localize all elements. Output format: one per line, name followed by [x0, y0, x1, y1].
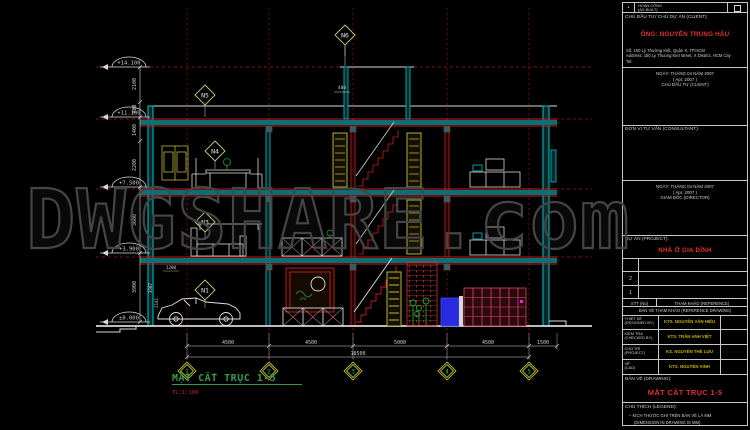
elev-0000: ±0.000	[119, 316, 139, 322]
drawing-title-block: MẶT CẮT TRỤC 1-5 TL:1:100	[172, 371, 302, 396]
project-name: NHÀ Ở GIA ĐÌNH	[623, 247, 747, 254]
client-address: Số: 150 Lý Thường Kiệt, Quận X, TP.HCM A…	[626, 48, 746, 64]
room-tags: N6 N5 N4 N3 N1	[195, 25, 355, 308]
consultant-header: ĐƠN VỊ TƯ VẤN (CONSULTANT):	[623, 127, 699, 132]
bdim-4: 4500	[482, 340, 494, 346]
staff-row: KIỂM TRA(CHECKED BY) KTS. TRẦN ANH VIỆT	[623, 330, 747, 345]
drawing-title: MẶT CẮT TRỤC 1-5	[172, 371, 276, 384]
legend-line2: (DIMENSION IN DRAWING IS MM)	[634, 420, 746, 425]
elev-7500: +7.500	[119, 181, 139, 187]
mdim-1200: 1200	[166, 265, 177, 270]
drawing-scale: TL:1:100	[172, 390, 199, 396]
ldim-2200: 2200	[132, 159, 138, 171]
bdim-5: 1500	[537, 340, 549, 346]
ldim-1400: 1400	[132, 124, 138, 136]
project-label: DỰ ÁN (PROJECT):	[623, 237, 669, 242]
asbuilt-checkbox	[734, 5, 741, 12]
elev-3900: +3.900	[119, 247, 139, 253]
ref-header-row: STT (No) THAM KHẢO (REFERENCE)	[623, 299, 747, 307]
ref-row: 2	[623, 272, 747, 286]
room-tag-n5: N5	[201, 92, 209, 100]
room-tag-n6: N6	[341, 32, 349, 40]
room-tag-n3: N3	[201, 219, 209, 227]
ldim-900: 900	[132, 104, 138, 113]
bdim-3: 5000	[394, 340, 406, 346]
elev-14100: +14.100	[117, 61, 140, 67]
director-sign-block: NGÀY: THÁNG 04 NĂM 2007 ( Apr, 2007 ) GI…	[623, 184, 747, 201]
staff-row: VẼ(CAD) KTS. NGUYỄN VINH	[623, 360, 747, 375]
ldim-3900: 3900	[132, 281, 138, 293]
staff-name: KTS. NGUYỄN VINH	[659, 360, 721, 374]
grid-bubble-3: 3	[351, 369, 355, 376]
staff-row: THIẾT KẾ(DESIGNED BY) KTS. NGUYỄN VĂN HI…	[623, 315, 747, 330]
asbuilt-row: • HOÀN CÔNG (AS BUILT)	[623, 3, 747, 13]
mdim-3507: 3507	[148, 282, 153, 293]
asbuilt-label-en: (AS BUILT)	[638, 7, 658, 12]
legend-line1: – KÍCH THƯỚC GHI TRÊN BẢN VẼ LÀ MM	[629, 413, 746, 418]
legend-label: CHÚ THÍCH (LEGEND):	[623, 405, 677, 410]
client-name: ÔNG: NGUYỄN TRUNG HẬU	[623, 31, 747, 38]
bdim-1: 4500	[222, 340, 234, 346]
titleblock-drawing-name: MẶT CẮT TRỤC 1-5	[623, 388, 747, 397]
client-sign-block: NGÀY: THÁNG 04 NĂM 2007 ( Apr, 2007 ) CH…	[623, 71, 747, 88]
ldim-3600: 3600	[132, 214, 138, 226]
mdim-2141: 2141	[154, 297, 159, 308]
asbuilt-bullet: •	[623, 3, 635, 13]
titleblock: • HOÀN CÔNG (AS BUILT) CHỦ ĐẦU TƯ/ CHỦ D…	[622, 2, 748, 426]
ref-row	[623, 258, 747, 272]
floor-slabs	[140, 119, 557, 270]
grid-bubble-5: 5	[527, 369, 531, 376]
dim-400: 400	[338, 85, 346, 91]
roof-bulkhead: 400	[334, 46, 414, 119]
ref-row: 1	[623, 286, 747, 299]
staff-name: KTS. TRẦN ANH VIỆT	[659, 330, 721, 344]
ref-header: THAM KHẢO (REFERENCE)	[657, 299, 747, 306]
ref-caption: BẢN VẼ THAM KHẢO (REFERENCE DRAWING)	[623, 308, 747, 313]
bdim-overall: 18500	[350, 351, 365, 357]
ldim-2100: 2100	[132, 78, 138, 90]
room-tag-n4: N4	[211, 148, 219, 156]
bdim-2: 4500	[305, 340, 317, 346]
drawing-label: BẢN VẼ (DRAWING):	[623, 377, 671, 382]
room-tag-n1: N1	[201, 287, 209, 295]
staff-name: KS. NGUYỄN THẾ LỰU	[659, 345, 721, 359]
ref-header-no: STT (No)	[623, 299, 657, 306]
grid-bubble-4: 4	[445, 369, 449, 376]
cad-sheet: 400	[0, 0, 750, 430]
staff-row: CHỦ TRÌ(PROJECT) KS. NGUYỄN THẾ LỰU	[623, 345, 747, 360]
client-header: CHỦ ĐẦU TƯ/ CHỦ DỰ ÁN (CLIENT):	[623, 15, 708, 20]
staff-name: KTS. NGUYỄN VĂN HIẾU	[659, 315, 721, 329]
